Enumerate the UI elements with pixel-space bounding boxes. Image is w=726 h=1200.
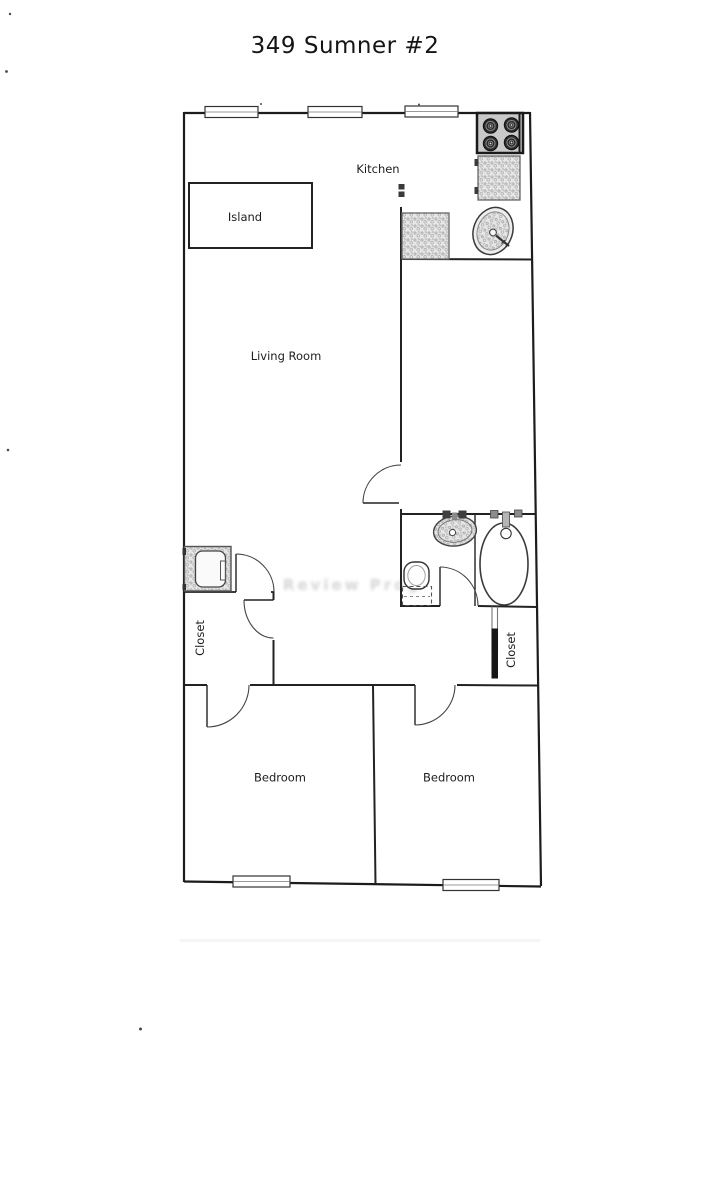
door-closet-left: [244, 600, 274, 638]
stove-icon: [477, 113, 523, 153]
window-bottom-2: [443, 880, 499, 891]
door-bathroom: [440, 567, 478, 606]
toilet-icon: [403, 562, 432, 606]
door-bedroom-right: [415, 685, 455, 725]
bathtub-icon: [480, 510, 528, 605]
window-top-1: [205, 107, 258, 118]
bathroom-sink-icon: [432, 511, 478, 549]
label-bedroom-right: Bedroom: [423, 771, 475, 785]
label-closet-right: Closet: [504, 632, 518, 668]
window-top-2: [308, 107, 362, 118]
door-hall: [363, 465, 401, 503]
window-bottom-1: [233, 876, 290, 887]
label-closet-left: Closet: [193, 620, 207, 656]
door-living-to-hallway: [236, 554, 274, 592]
floor-plan: Review Prog: [0, 0, 726, 1200]
label-bedroom-left: Bedroom: [254, 771, 306, 785]
door-bedroom-left: [207, 685, 249, 727]
label-living-room: Living Room: [251, 349, 322, 363]
label-kitchen: Kitchen: [356, 162, 399, 176]
window-top-3: [405, 106, 458, 117]
kitchen-counter-right: [475, 156, 521, 200]
kitchen-counter-left: [399, 184, 450, 259]
closet-sliding-door: [492, 607, 499, 679]
label-island: Island: [228, 210, 262, 224]
washer-icon: [183, 547, 232, 592]
